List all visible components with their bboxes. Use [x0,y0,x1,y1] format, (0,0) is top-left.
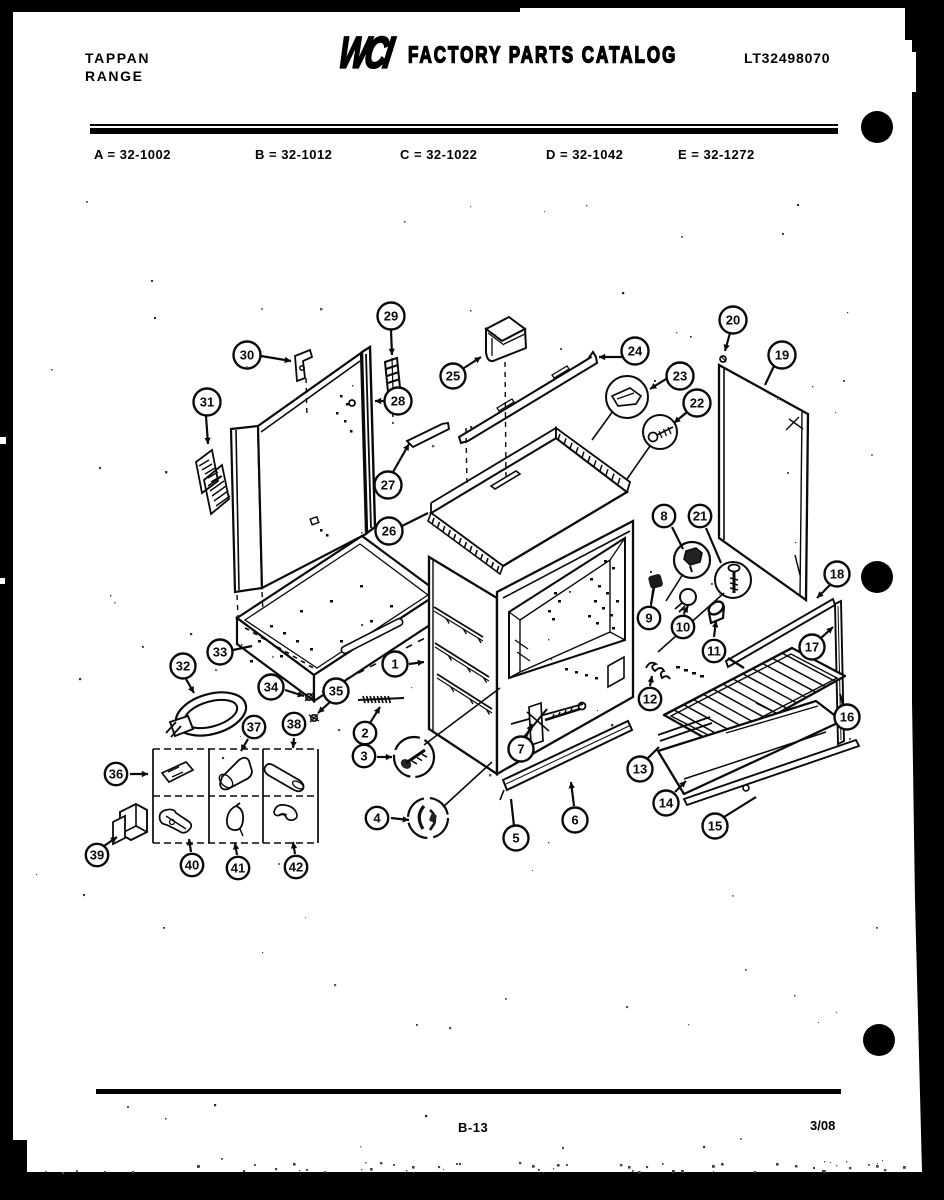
svg-text:23: 23 [673,369,687,384]
svg-text:22: 22 [690,396,704,411]
svg-text:8: 8 [660,509,667,524]
svg-text:10: 10 [676,620,690,635]
svg-text:28: 28 [391,394,405,409]
svg-text:35: 35 [329,684,343,699]
svg-text:4: 4 [373,811,381,826]
svg-text:42: 42 [289,860,303,875]
svg-text:39: 39 [90,848,104,863]
svg-text:27: 27 [381,478,395,493]
svg-text:3: 3 [360,749,367,764]
svg-text:26: 26 [382,524,396,539]
svg-text:20: 20 [726,313,740,328]
svg-text:37: 37 [247,720,261,735]
svg-text:30: 30 [240,348,254,363]
svg-text:16: 16 [840,710,854,725]
svg-text:21: 21 [693,509,707,524]
svg-text:9: 9 [645,611,652,626]
svg-text:18: 18 [830,567,844,582]
svg-text:17: 17 [805,640,819,655]
svg-text:24: 24 [628,344,643,359]
svg-text:11: 11 [707,644,721,659]
svg-text:41: 41 [231,861,245,876]
svg-text:29: 29 [384,309,398,324]
svg-text:25: 25 [446,369,460,384]
svg-text:31: 31 [200,395,214,410]
svg-text:34: 34 [264,680,279,695]
svg-text:36: 36 [109,767,123,782]
svg-text:14: 14 [659,796,674,811]
svg-text:13: 13 [633,762,647,777]
svg-text:5: 5 [512,831,519,846]
svg-text:15: 15 [708,819,722,834]
svg-text:7: 7 [517,742,524,757]
svg-text:1: 1 [391,657,398,672]
svg-text:19: 19 [775,348,789,363]
svg-text:40: 40 [185,858,199,873]
svg-text:2: 2 [361,726,368,741]
svg-text:33: 33 [213,645,227,660]
svg-text:32: 32 [176,659,190,674]
svg-text:6: 6 [571,813,578,828]
svg-text:38: 38 [287,717,301,732]
svg-text:12: 12 [643,692,657,707]
